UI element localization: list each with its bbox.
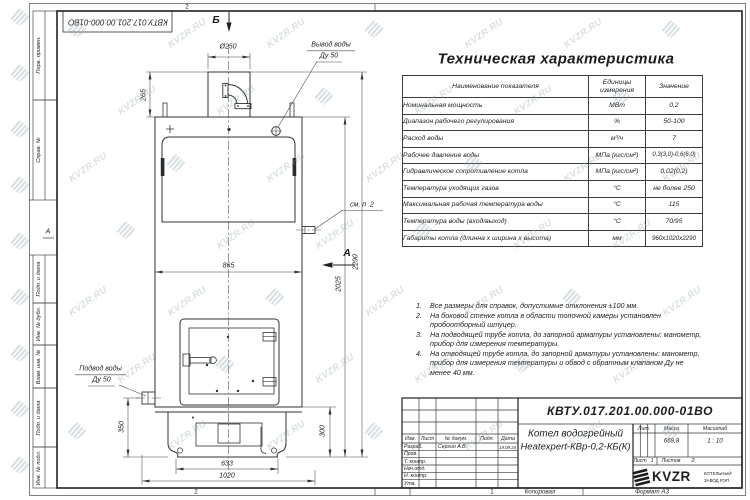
param-value: 960х1020х2290 xyxy=(646,230,703,247)
lit-label: Лит. xyxy=(638,426,650,432)
dim-2290: 2290 xyxy=(353,254,360,270)
param-name: Максимальная рабочая температура воды xyxy=(403,197,589,214)
note-number: 4. xyxy=(416,349,430,378)
param-value: 0,02(0,2) xyxy=(646,164,703,181)
table-row: Температура воды (вход/выход)°С70/95 xyxy=(403,214,703,231)
sidebar-label-vzam-inv: Взам. инв. № xyxy=(36,349,42,384)
dim-300: 300 xyxy=(319,425,326,437)
table-row: Температура уходящих газов°Сне более 250 xyxy=(403,180,703,197)
sidebar-label-podp-data-1: Подп. и дата xyxy=(36,261,42,296)
param-units: м³/ч xyxy=(589,131,646,148)
role-n-kontr: Н. контр. xyxy=(404,473,427,479)
param-name: Номинальная мощность xyxy=(403,98,589,115)
sheet-label: Лист xyxy=(633,458,646,464)
param-units: МПа (кгс/см²) xyxy=(589,147,646,164)
col-header-value: Значение xyxy=(646,76,703,98)
title-block-doc-number: КВТУ.017.201.00.000-01ВО xyxy=(547,404,713,418)
role-t-kontr: Т. контр. xyxy=(404,459,426,465)
role-nach-otd: Нач.отд. xyxy=(404,466,426,472)
view-marker-b: Б xyxy=(212,14,219,26)
note-number: 3. xyxy=(416,330,430,349)
param-name: Температура уходящих газов xyxy=(403,180,589,197)
note-text: Все размеры для справок, допустимые откл… xyxy=(430,301,704,311)
zone-marker-left: А xyxy=(46,229,51,236)
label-see-note-2: см. п .2 xyxy=(350,201,374,208)
stamp-doc-number-rotated: КВТУ.017.201.00.000-01ВО xyxy=(68,17,168,26)
sidebar-label-perv-primen: Перв. примен. xyxy=(36,36,42,73)
param-name: Расход воды xyxy=(403,131,589,148)
dim-diameter-250: Ø250 xyxy=(219,44,236,51)
dim-1020: 1020 xyxy=(219,472,235,479)
param-name: Гидравлическое сопротивление котла xyxy=(403,164,589,181)
tech-table: Наименование показателя Единицы измерени… xyxy=(402,75,703,247)
param-name: Температура воды (вход/выход) xyxy=(403,214,589,231)
param-value: 50-100 xyxy=(646,114,703,131)
param-value: 115 xyxy=(646,197,703,214)
note-text: На боковой стенке котла в области топочн… xyxy=(430,311,704,330)
dim-2025: 2025 xyxy=(335,276,342,292)
note-item: 3.На подводящей трубе котла, до запорной… xyxy=(416,330,704,349)
param-units: % xyxy=(589,114,646,131)
param-value: 70/95 xyxy=(646,214,703,231)
footer-copied-label: Копировал xyxy=(525,489,556,496)
param-value: 0,2 xyxy=(646,98,703,115)
sheets-value: 2 xyxy=(691,458,694,464)
dim-350: 350 xyxy=(118,421,125,433)
param-name: Рабочее давление воды xyxy=(403,147,589,164)
label-water-inlet-dn: Ду 50 xyxy=(92,377,110,384)
note-item: 4.На отводящей трубе котла, до запорной … xyxy=(416,349,704,378)
col-list: Лист xyxy=(421,436,434,442)
param-name: Габариты котла (длинна х ширина х высота… xyxy=(403,230,589,247)
col-header-units: Единицы измерения xyxy=(589,76,646,98)
param-name: Диапазон рабочего регулирования xyxy=(403,114,589,131)
sidebar-label-inv-podl: Инв. № подл. xyxy=(36,450,42,485)
note-item: 1.Все размеры для справок, допустимые от… xyxy=(416,301,704,311)
note-text: На подводящей трубе котла, до запорной а… xyxy=(430,330,704,349)
role-razrab: Разраб. xyxy=(404,444,423,450)
notes-list: 1.Все размеры для справок, допустимые от… xyxy=(416,301,704,378)
table-row: Расход водым³/ч7 xyxy=(403,131,703,148)
label-water-outlet-dn: Ду 50 xyxy=(320,53,338,60)
table-row: Диапазон рабочего регулирования%50-100 xyxy=(403,114,703,131)
scale-label: Масштаб xyxy=(703,426,727,432)
label-water-inlet: Подвод воды xyxy=(79,365,121,372)
table-row: Гидравлическое сопротивление котлаМПа (к… xyxy=(403,164,703,181)
role-utv: Утв. xyxy=(404,481,416,487)
mass-label: Масса xyxy=(664,426,679,432)
param-value: 0,3(3,0)-0,6(6,0) xyxy=(646,147,703,164)
company-sub2: ЗАВОД РЭП xyxy=(704,478,729,483)
sidebar-label-podp-data-2: Подп. и дата xyxy=(36,400,42,435)
view-marker-a: А xyxy=(343,247,351,259)
zone-marker-bottom-right: 1 xyxy=(490,489,493,496)
tech-table-header-row: Наименование показателя Единицы измерени… xyxy=(403,76,703,98)
product-name-line1: Котел водогрейный xyxy=(528,429,623,440)
col-data: Дата xyxy=(501,436,515,442)
dim-265: 265 xyxy=(140,89,147,101)
param-value: не более 250 xyxy=(646,180,703,197)
param-units: °С xyxy=(589,180,646,197)
param-value: 7 xyxy=(646,131,703,148)
sidebar-label-inv-dubl: Инв. № дубл. xyxy=(36,307,42,341)
developer-name: Сергин А.В. xyxy=(438,444,467,450)
param-units: мм xyxy=(589,230,646,247)
dim-633: 633 xyxy=(221,460,233,467)
table-row: Рабочее давление водыМПа (кгс/см²)0,3(3,… xyxy=(403,147,703,164)
footer-format-label: Формат А3 xyxy=(635,489,669,496)
label-water-outlet: Вывод воды xyxy=(311,41,350,48)
product-name-line2: Heatexpert-КВр-0,2-КБ(К) xyxy=(520,442,630,453)
sidebar-label-sprav-no: Справ. № xyxy=(36,137,42,162)
sheet-value: 1 xyxy=(650,458,653,464)
table-row: Максимальная рабочая температура воды°С1… xyxy=(403,197,703,214)
param-units: МПа (кгс/см²) xyxy=(589,164,646,181)
zone-marker-top: 2 xyxy=(185,4,188,11)
table-row: Номинальная мощностьМВт0,2 xyxy=(403,98,703,115)
dim-865: 865 xyxy=(223,262,235,269)
role-prov: Пров. xyxy=(404,451,418,457)
note-text: На отводящей трубе котла, до запорной ар… xyxy=(430,349,704,378)
mass-value: 669,8 xyxy=(664,438,679,445)
param-units: °С xyxy=(589,214,646,231)
drawing-sheet: Ø250 265 865 2025 2290 300 350 633 1020 … xyxy=(0,0,750,500)
company-logo-text: KVZR xyxy=(652,469,691,484)
col-dokum: № докум. xyxy=(445,436,468,442)
tech-table-title: Техническая характеристика xyxy=(438,51,675,68)
table-row: Габариты котла (длинна х ширина х высота… xyxy=(403,230,703,247)
note-number: 1. xyxy=(416,301,430,311)
company-sub1: КОТЕЛЬНЫЙ xyxy=(704,471,732,476)
zone-marker-bottom-left: 2 xyxy=(194,489,197,496)
col-podp: Подп. xyxy=(480,436,494,442)
col-header-name: Наименование показателя xyxy=(403,76,589,98)
param-units: °С xyxy=(589,197,646,214)
col-izm: Изм. xyxy=(405,436,416,442)
scale-value: 1 : 10 xyxy=(707,438,722,445)
note-item: 2.На боковой стенке котла в области топо… xyxy=(416,311,704,330)
param-units: МВт xyxy=(589,98,646,115)
sheets-label: Листов xyxy=(662,458,681,464)
developer-date: 19.09.24 xyxy=(499,445,516,450)
note-number: 2. xyxy=(416,311,430,330)
